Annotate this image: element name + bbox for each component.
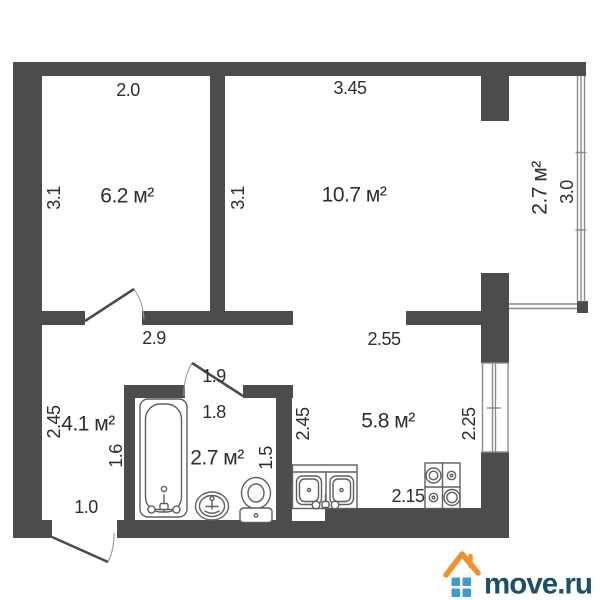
dim-bathroom-left-depth: 1.6 <box>106 444 126 468</box>
stove <box>425 463 460 509</box>
logo-wordmark[interactable]: move.ru <box>484 568 592 600</box>
dim-hallway-top-width: 2.9 <box>142 328 166 348</box>
label-hallway-area: 4.1 м² <box>61 413 115 436</box>
wall-right-middle <box>481 273 509 363</box>
dim-kitchen-window-span: 2.25 <box>459 407 479 441</box>
floor-plan: 2.0 3.45 3.1 6.2 м² 3.1 10.7 м² 2.7 м² 3… <box>0 0 600 600</box>
sink-faucet-handle <box>331 501 339 509</box>
toilet <box>240 478 272 523</box>
bathtub-faucet-hub <box>160 504 168 510</box>
sink-faucet-hub <box>322 502 329 508</box>
toilet-bowl-outer <box>242 478 271 509</box>
wall-right-top-stub <box>481 62 509 121</box>
bathtub-faucet-handle <box>148 506 155 513</box>
house-square <box>463 589 472 598</box>
dim-kitchen-depth: 2.45 <box>293 407 313 441</box>
toilet-tank <box>240 508 272 523</box>
dim-room-top-right-depth: 3.1 <box>228 186 248 210</box>
wall-bottom-left <box>13 520 52 538</box>
label-room-top-right-area: 10.7 м² <box>322 184 387 207</box>
bathtub <box>140 399 187 517</box>
wall-divider-rooms <box>210 62 225 325</box>
dim-bathroom-door-span: 1.9 <box>202 366 226 386</box>
wall-bathroom-right <box>276 385 292 520</box>
dim-room-top-left-depth: 3.1 <box>44 186 64 210</box>
dim-entry-opening-width: 1.0 <box>74 497 98 517</box>
bathtub-faucet-handle <box>173 506 180 513</box>
bathroom-sink <box>196 492 229 520</box>
wall-middle-left-segment <box>42 311 85 325</box>
kitchen-sink-counter <box>293 465 358 509</box>
dim-kitchen-bottom-width: 2.15 <box>391 486 425 506</box>
wall-middle-right-segment <box>406 311 482 325</box>
sink-faucet-handle <box>312 501 320 509</box>
label-bathroom-area: 2.7 м² <box>190 447 244 470</box>
house-square <box>452 578 461 587</box>
wall-middle-center-segment <box>142 311 293 325</box>
dim-kitchen-top-width: 2.55 <box>367 329 401 349</box>
dim-room-top-right-width: 3.45 <box>333 78 367 98</box>
dim-bathroom-top-width: 1.8 <box>202 402 226 422</box>
wall-niche <box>292 508 325 521</box>
dim-bathroom-right-depth: 1.5 <box>256 446 276 470</box>
label-kitchen-area: 5.8 м² <box>361 410 415 433</box>
label-room-top-left-area: 6.2 м² <box>100 185 154 208</box>
house-square <box>463 578 472 587</box>
dim-balcony-length: 3.0 <box>557 180 577 204</box>
house-square <box>452 589 461 598</box>
label-balcony-area: 2.7 м² <box>529 161 552 215</box>
dim-room-top-left-width: 2.0 <box>116 80 140 100</box>
wall-bathroom-top-left-segment <box>124 385 185 398</box>
wall-balcony-pier <box>577 301 588 313</box>
wall-outer-left <box>13 62 42 538</box>
